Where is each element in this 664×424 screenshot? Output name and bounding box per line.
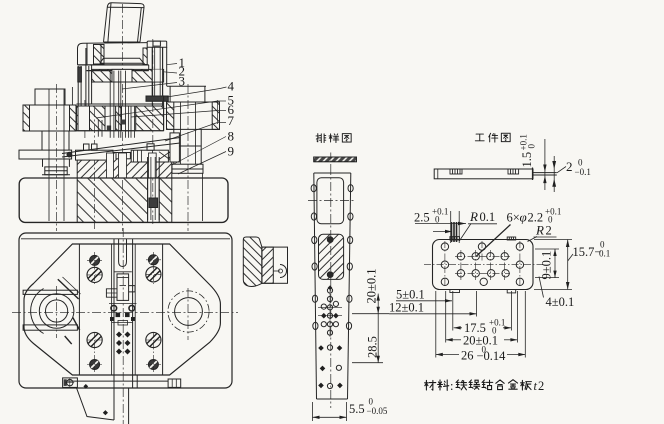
svg-text:0: 0: [369, 397, 374, 407]
svg-text:t: t: [534, 379, 538, 393]
svg-text:9±0.1: 9±0.1: [540, 251, 554, 280]
svg-text:4: 4: [228, 79, 235, 94]
svg-text:−0.14: −0.14: [477, 349, 507, 363]
svg-text:1.5: 1.5: [520, 152, 534, 168]
svg-text::: :: [450, 379, 453, 393]
svg-text:0.1: 0.1: [599, 249, 610, 259]
svg-text:2.5: 2.5: [414, 211, 430, 225]
svg-text:R: R: [535, 223, 544, 238]
svg-text:−0.05: −0.05: [367, 406, 388, 416]
svg-text:20±0.1: 20±0.1: [463, 334, 498, 348]
svg-text:9: 9: [228, 143, 235, 158]
svg-text:5±0.1: 5±0.1: [396, 288, 425, 302]
svg-text:φ: φ: [520, 210, 527, 225]
svg-text:0: 0: [578, 158, 583, 168]
svg-text:8: 8: [228, 128, 235, 143]
svg-text:−0.1: −0.1: [575, 167, 591, 177]
svg-text:7: 7: [228, 113, 235, 128]
svg-text:26: 26: [461, 349, 474, 363]
svg-text:12±0.1: 12±0.1: [389, 301, 424, 315]
svg-text:28.5: 28.5: [366, 336, 380, 358]
svg-text:0.1: 0.1: [480, 210, 496, 224]
svg-text:20±0.1: 20±0.1: [365, 269, 379, 304]
svg-text:15.7−: 15.7−: [573, 245, 602, 259]
svg-text:4±0.1: 4±0.1: [546, 295, 575, 309]
svg-text:2: 2: [538, 379, 544, 393]
svg-text:6×: 6×: [507, 211, 520, 225]
svg-text:2: 2: [566, 159, 573, 174]
svg-text:R: R: [469, 209, 478, 224]
svg-text:2: 2: [546, 224, 552, 238]
svg-text:5.5: 5.5: [349, 402, 365, 416]
svg-text:0: 0: [527, 144, 537, 149]
svg-text:0: 0: [435, 215, 440, 225]
svg-text:3: 3: [179, 74, 186, 89]
